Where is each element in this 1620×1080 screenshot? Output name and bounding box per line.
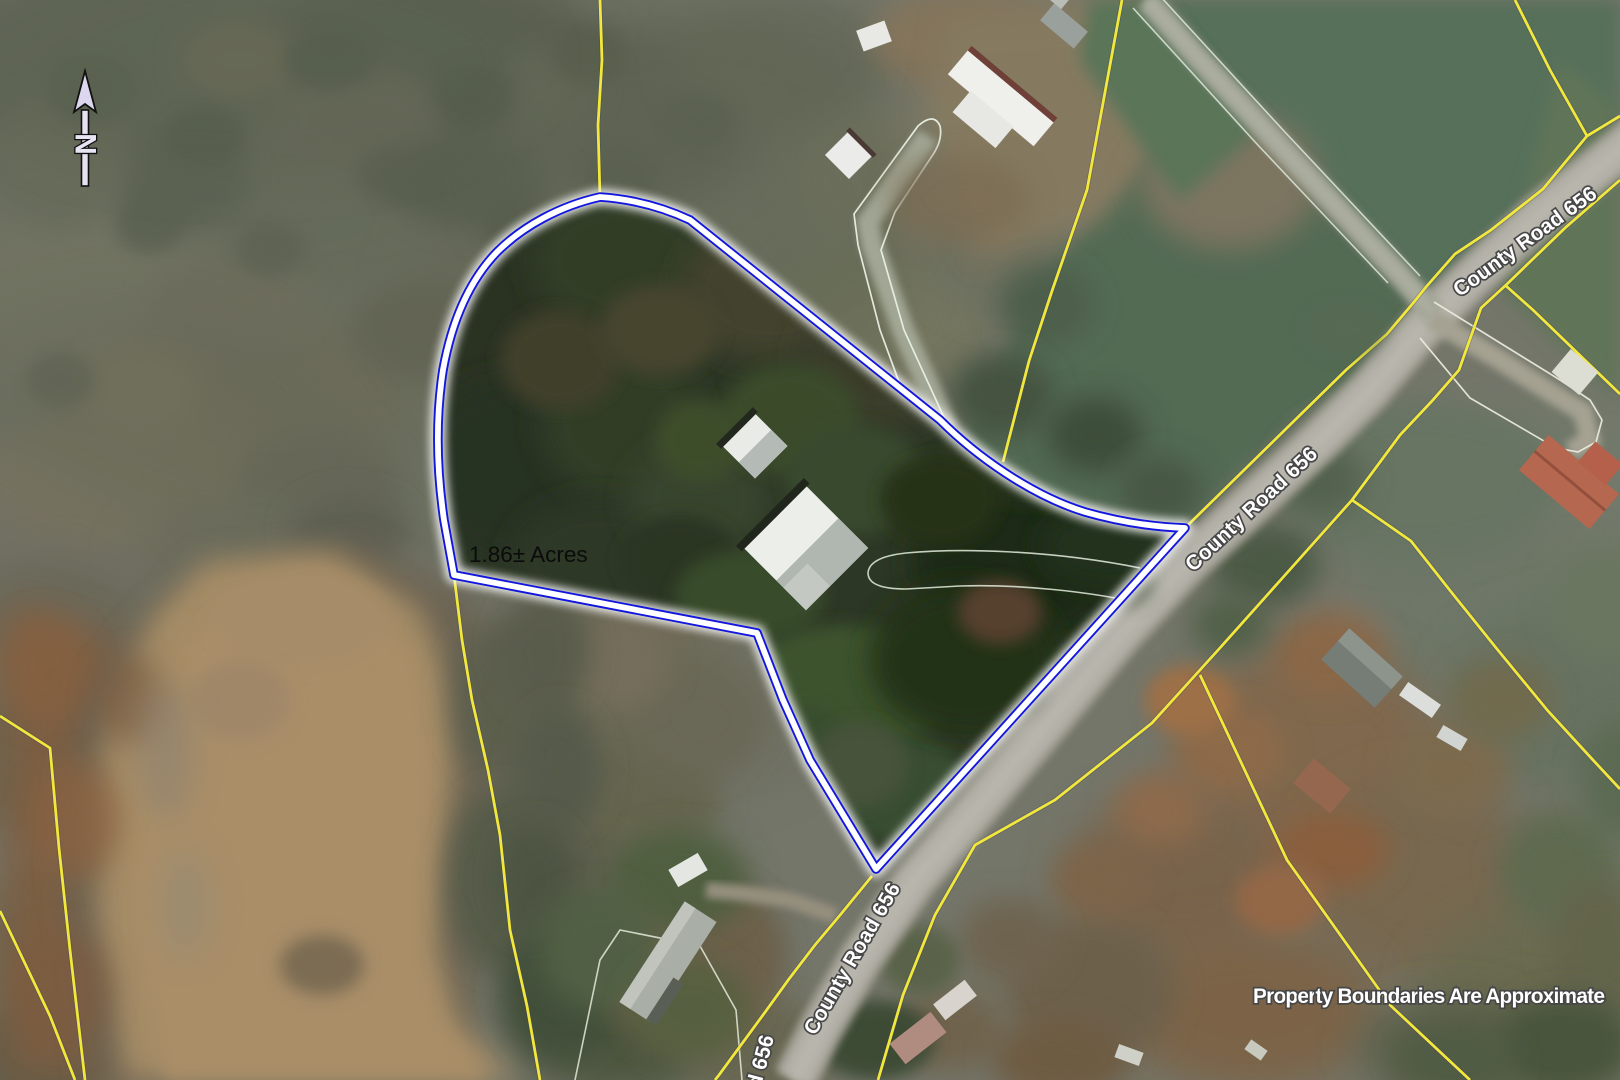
svg-text:1.86± Acres: 1.86± Acres	[469, 542, 588, 567]
svg-text:N: N	[69, 133, 102, 155]
svg-text:Property Boundaries Are Approx: Property Boundaries Are Approximate	[1253, 985, 1605, 1008]
